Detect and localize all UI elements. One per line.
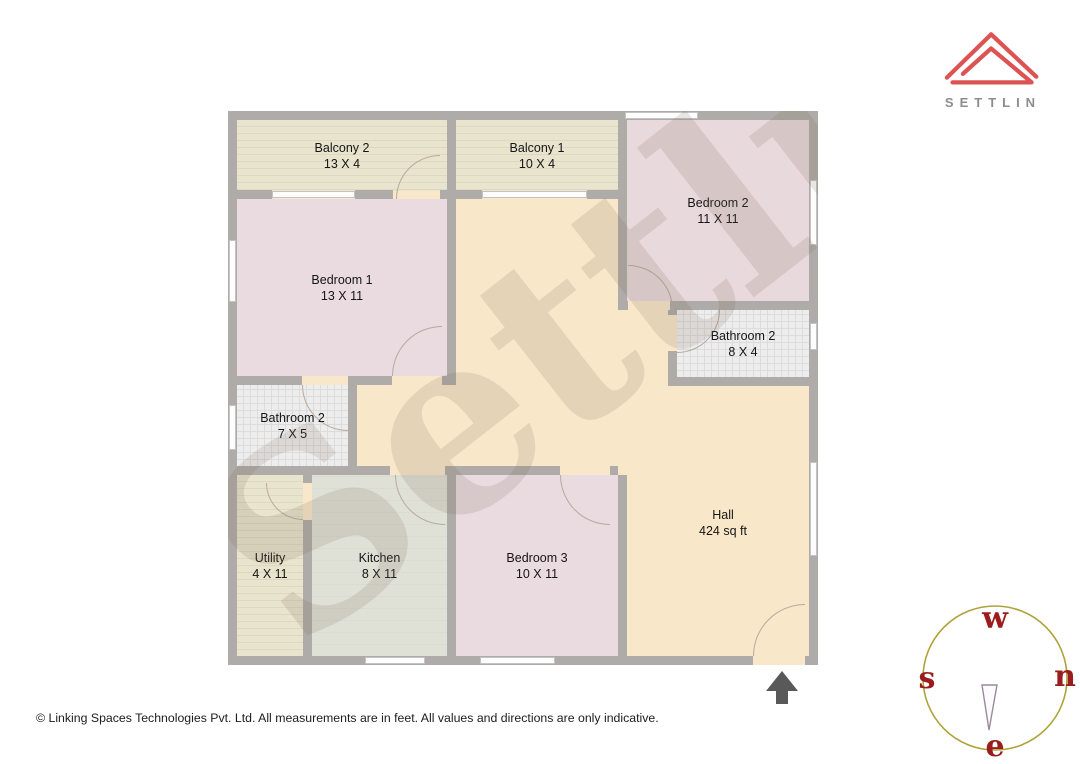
wall — [237, 190, 272, 199]
floorplan-page: SETTLIN Balcony 2 13 X 4 Balcony 1 10 X … — [0, 0, 1080, 764]
room-dims: 4 X 11 — [252, 566, 287, 582]
room-dims: 10 X 11 — [506, 566, 567, 582]
room-dims: 13 X 4 — [315, 156, 370, 172]
room-hall-label: Hall 424 sq ft — [658, 507, 788, 539]
room-name: Hall — [658, 507, 788, 523]
copyright-note: © Linking Spaces Technologies Pvt. Ltd. … — [36, 711, 659, 725]
room-dims: 11 X 11 — [687, 211, 748, 227]
window — [272, 191, 355, 198]
room-dims: 8 X 11 — [359, 566, 401, 582]
wall — [670, 301, 809, 310]
wall — [440, 190, 456, 199]
wall — [303, 475, 312, 483]
room-dims: 424 sq ft — [658, 523, 788, 539]
wall — [668, 310, 677, 315]
room-name: Kitchen — [359, 550, 401, 566]
wall — [610, 466, 618, 475]
compass-west-label: w — [981, 601, 1009, 636]
compass-rose: w s n e — [913, 592, 1078, 764]
window — [810, 323, 817, 350]
room-name: Utility — [252, 550, 287, 566]
wall — [447, 120, 456, 385]
room-name: Bathroom 2 — [260, 410, 325, 426]
brand-name: SETTLIN — [928, 95, 1058, 110]
wall — [228, 111, 237, 665]
room-name: Bedroom 1 — [311, 272, 372, 288]
wall — [303, 520, 312, 656]
wall — [355, 190, 393, 199]
window — [229, 405, 236, 450]
room-balcony-1: Balcony 1 10 X 4 — [456, 120, 618, 191]
wall — [442, 376, 456, 385]
entrance-opening — [753, 656, 805, 665]
window — [365, 657, 425, 664]
window — [480, 657, 555, 664]
wall — [618, 120, 627, 310]
window — [625, 112, 698, 119]
wall — [456, 190, 482, 199]
room-dims: 7 X 5 — [260, 426, 325, 442]
wall — [587, 190, 618, 199]
window — [482, 191, 587, 198]
room-name: Balcony 2 — [315, 140, 370, 156]
main-door-arc — [753, 604, 805, 656]
room-dims: 8 X 4 — [711, 344, 776, 360]
compass-south-label: s — [919, 661, 936, 696]
window — [229, 240, 236, 302]
room-name: Bedroom 3 — [506, 550, 567, 566]
room-name: Balcony 1 — [510, 140, 565, 156]
wall — [237, 376, 302, 385]
entrance-arrow-icon — [766, 671, 798, 704]
wall — [618, 301, 628, 310]
window — [810, 462, 817, 556]
wall — [618, 475, 627, 656]
compass-needle — [982, 685, 997, 730]
settlin-logo: SETTLIN — [928, 24, 1058, 110]
floorplan: Balcony 2 13 X 4 Balcony 1 10 X 4 Bedroo… — [228, 111, 818, 665]
wall — [668, 377, 809, 386]
wall — [447, 475, 456, 656]
room-name: Bathroom 2 — [711, 328, 776, 344]
settlin-house-icon — [940, 24, 1046, 88]
compass-north-label: n — [1054, 659, 1076, 694]
room-dims: 10 X 4 — [510, 156, 565, 172]
wall — [445, 466, 456, 475]
wall — [237, 466, 390, 475]
wall — [228, 111, 818, 120]
arrow-tail — [776, 691, 788, 704]
room-name: Bedroom 2 — [687, 195, 748, 211]
compass-east-label: e — [985, 729, 1004, 764]
arrow-head — [766, 671, 798, 691]
wall — [348, 376, 392, 385]
wall — [456, 466, 560, 475]
room-dims: 13 X 11 — [311, 288, 372, 304]
wall — [348, 385, 357, 466]
window — [810, 180, 817, 245]
